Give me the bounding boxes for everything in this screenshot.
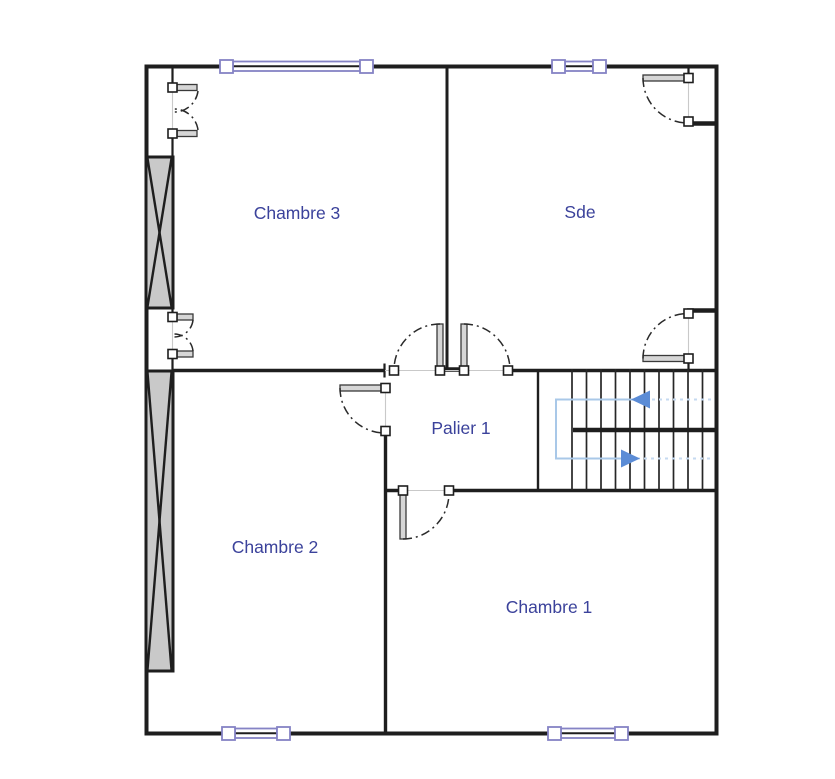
door-palier-to-chambre2 <box>340 384 390 436</box>
door-sde-stair-landing <box>643 309 693 363</box>
window-chambre2-bottom <box>222 727 290 740</box>
floor-plan-canvas: Chambre 3 Sde Palier 1 Chambre 2 Chambre… <box>0 0 835 779</box>
room-label-sde: Sde <box>564 202 595 222</box>
room-labels: Chambre 3 Sde Palier 1 Chambre 2 Chambre… <box>232 202 596 617</box>
room-label-chambre-3: Chambre 3 <box>254 203 341 223</box>
door-palier-to-sde <box>460 324 513 375</box>
door-top-right-nook <box>643 74 693 127</box>
chimney-block-lower <box>146 371 173 671</box>
stair-arrow-left-icon <box>631 391 650 409</box>
window-chambre1-bottom <box>548 727 628 740</box>
room-label-chambre-2: Chambre 2 <box>232 537 319 557</box>
window-sde-top <box>552 60 606 73</box>
window-chambre3-top <box>220 60 373 73</box>
door-palier-to-chambre1 <box>399 486 454 539</box>
staircase <box>538 369 716 490</box>
door-palier-to-chambre3 <box>390 324 445 375</box>
room-label-palier-1: Palier 1 <box>431 418 490 438</box>
room-label-chambre-1: Chambre 1 <box>506 597 593 617</box>
floor-plan-drawing: Chambre 3 Sde Palier 1 Chambre 2 Chambre… <box>0 0 835 779</box>
door-chambre2-left-wall <box>168 313 193 359</box>
chimney-block-upper <box>146 157 173 308</box>
